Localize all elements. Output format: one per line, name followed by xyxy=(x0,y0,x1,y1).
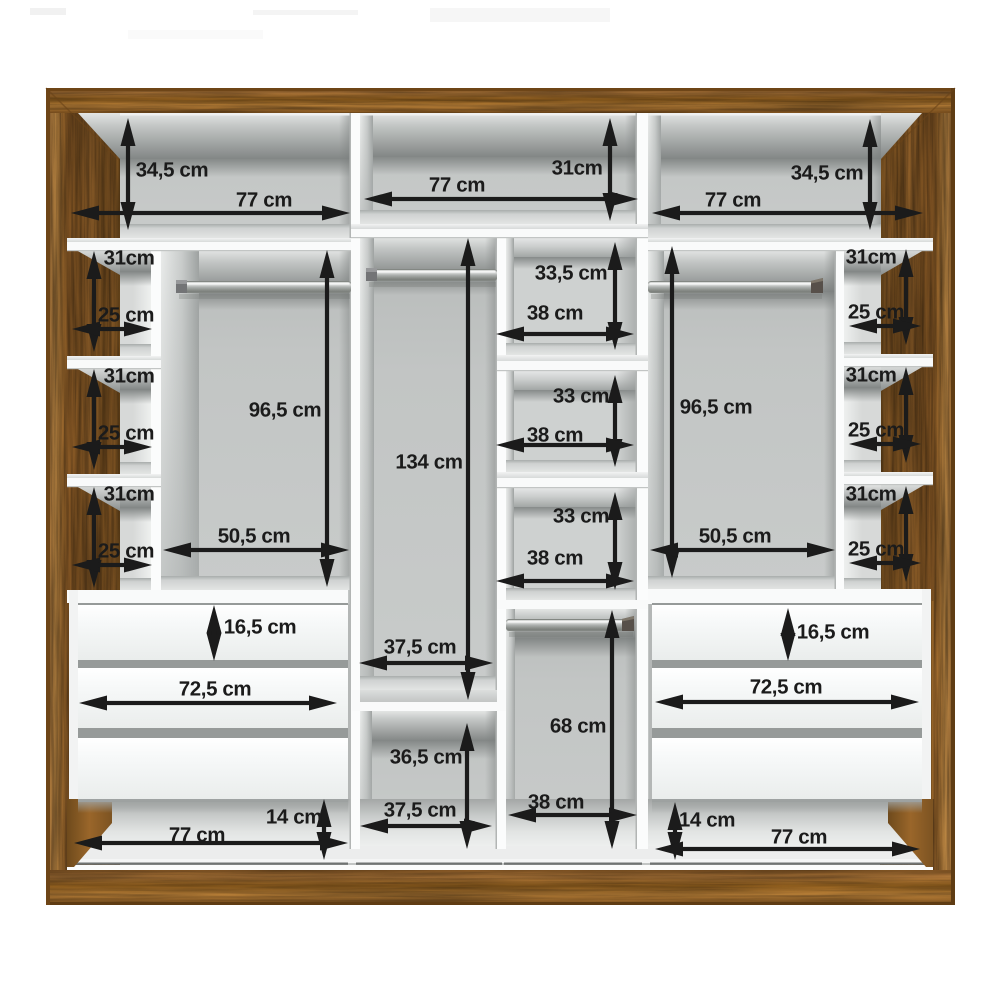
svg-text:134 cm: 134 cm xyxy=(395,451,462,474)
svg-text:33,5 cm: 33,5 cm xyxy=(535,262,607,285)
svg-text:31cm: 31cm xyxy=(104,365,155,388)
svg-text:37,5 cm: 37,5 cm xyxy=(384,799,456,822)
svg-text:36,5 cm: 36,5 cm xyxy=(390,746,462,769)
svg-text:38 cm: 38 cm xyxy=(527,547,583,570)
svg-text:38 cm: 38 cm xyxy=(527,302,583,325)
svg-text:31cm: 31cm xyxy=(552,157,603,180)
svg-text:34,5 cm: 34,5 cm xyxy=(791,162,863,185)
svg-text:77 cm: 77 cm xyxy=(771,826,827,849)
svg-text:33 cm: 33 cm xyxy=(553,505,609,528)
svg-text:72,5 cm: 72,5 cm xyxy=(179,678,251,701)
svg-text:31cm: 31cm xyxy=(104,247,155,270)
svg-text:16,5 cm: 16,5 cm xyxy=(797,621,869,644)
svg-text:77 cm: 77 cm xyxy=(236,189,292,212)
svg-text:68 cm: 68 cm xyxy=(550,715,606,738)
svg-text:96,5 cm: 96,5 cm xyxy=(249,399,321,422)
svg-text:16,5 cm: 16,5 cm xyxy=(224,616,296,639)
svg-text:77 cm: 77 cm xyxy=(429,174,485,197)
svg-text:31cm: 31cm xyxy=(846,364,897,387)
svg-text:31cm: 31cm xyxy=(104,483,155,506)
svg-text:14 cm: 14 cm xyxy=(679,809,735,832)
svg-text:31cm: 31cm xyxy=(846,483,897,506)
svg-text:96,5 cm: 96,5 cm xyxy=(680,396,752,419)
svg-text:37,5 cm: 37,5 cm xyxy=(384,636,456,659)
svg-text:50,5 cm: 50,5 cm xyxy=(699,525,771,548)
svg-text:31cm: 31cm xyxy=(846,246,897,269)
svg-text:14 cm: 14 cm xyxy=(266,806,322,829)
svg-text:34,5 cm: 34,5 cm xyxy=(136,159,208,182)
svg-text:72,5 cm: 72,5 cm xyxy=(750,676,822,699)
svg-text:50,5 cm: 50,5 cm xyxy=(218,525,290,548)
svg-text:77 cm: 77 cm xyxy=(705,189,761,212)
svg-text:38 cm: 38 cm xyxy=(528,791,584,814)
svg-text:33 cm: 33 cm xyxy=(553,385,609,408)
